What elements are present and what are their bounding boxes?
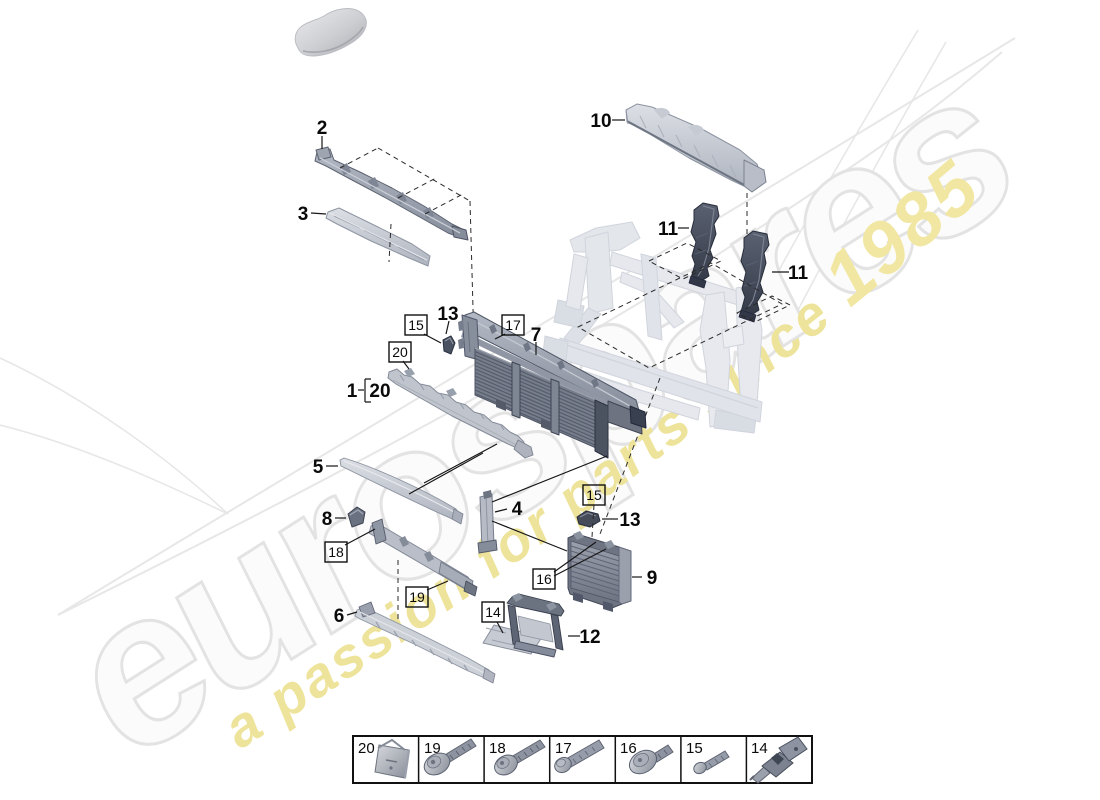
- svg-text:11: 11: [658, 219, 679, 240]
- svg-text:15: 15: [408, 317, 424, 333]
- svg-text:3: 3: [298, 204, 309, 225]
- svg-text:17: 17: [555, 740, 572, 757]
- svg-text:20: 20: [369, 381, 390, 402]
- svg-text:18: 18: [328, 544, 344, 560]
- svg-text:14: 14: [485, 604, 501, 620]
- svg-text:16: 16: [536, 571, 552, 587]
- svg-text:13: 13: [619, 510, 640, 531]
- svg-text:10: 10: [590, 111, 611, 132]
- svg-text:2: 2: [317, 118, 328, 139]
- svg-text:18: 18: [489, 740, 506, 757]
- svg-text:11: 11: [788, 263, 809, 284]
- svg-text:5: 5: [313, 457, 324, 478]
- svg-text:19: 19: [409, 589, 425, 605]
- svg-text:13: 13: [437, 304, 458, 325]
- svg-text:15: 15: [586, 487, 602, 503]
- svg-text:16: 16: [620, 740, 637, 757]
- svg-text:15: 15: [686, 740, 703, 757]
- svg-text:17: 17: [505, 317, 521, 333]
- svg-text:20: 20: [392, 344, 408, 360]
- svg-text:6: 6: [334, 606, 345, 627]
- svg-text:20: 20: [358, 740, 375, 757]
- svg-text:8: 8: [322, 509, 333, 530]
- svg-text:14: 14: [751, 740, 768, 757]
- svg-text:1: 1: [347, 381, 358, 402]
- svg-text:4: 4: [512, 499, 523, 520]
- svg-text:9: 9: [647, 568, 658, 589]
- svg-text:7: 7: [531, 325, 542, 346]
- svg-text:12: 12: [579, 627, 600, 648]
